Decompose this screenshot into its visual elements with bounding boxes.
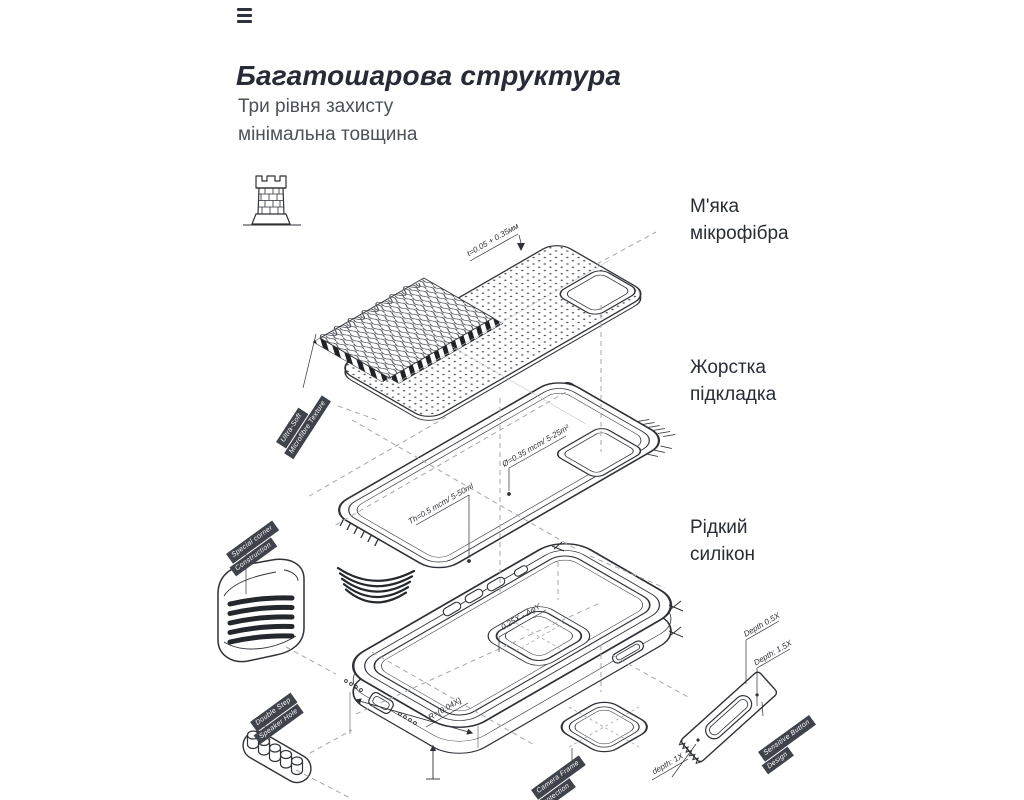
hard-liner-ribs-bottom <box>338 568 414 602</box>
hard-liner-tray <box>320 372 685 583</box>
corner-detail-drawing <box>218 559 304 661</box>
speaker-pins-drawing <box>238 726 316 787</box>
leader-dot-1 <box>507 492 511 496</box>
product-page: Багатошарова структура Три рівня захисту… <box>0 0 1024 800</box>
camera-ring-drawing <box>554 698 654 756</box>
annotation-button-depth-a: Depth 0.5X <box>742 611 782 639</box>
annotation-button-depth-b: Depth: 1.5X <box>752 638 794 667</box>
depth-dimension <box>426 746 440 779</box>
exploded-view-diagram: t=0.05 + 0.35мм Ø=0.35 mcm/ 5-25m² Th=0.… <box>0 0 1024 800</box>
dimension-arrowhead <box>517 243 525 251</box>
annotation-sheet-thickness: t=0.05 + 0.35мм <box>465 221 520 258</box>
castle-icon <box>243 176 301 225</box>
leader-dot-2 <box>467 559 471 563</box>
